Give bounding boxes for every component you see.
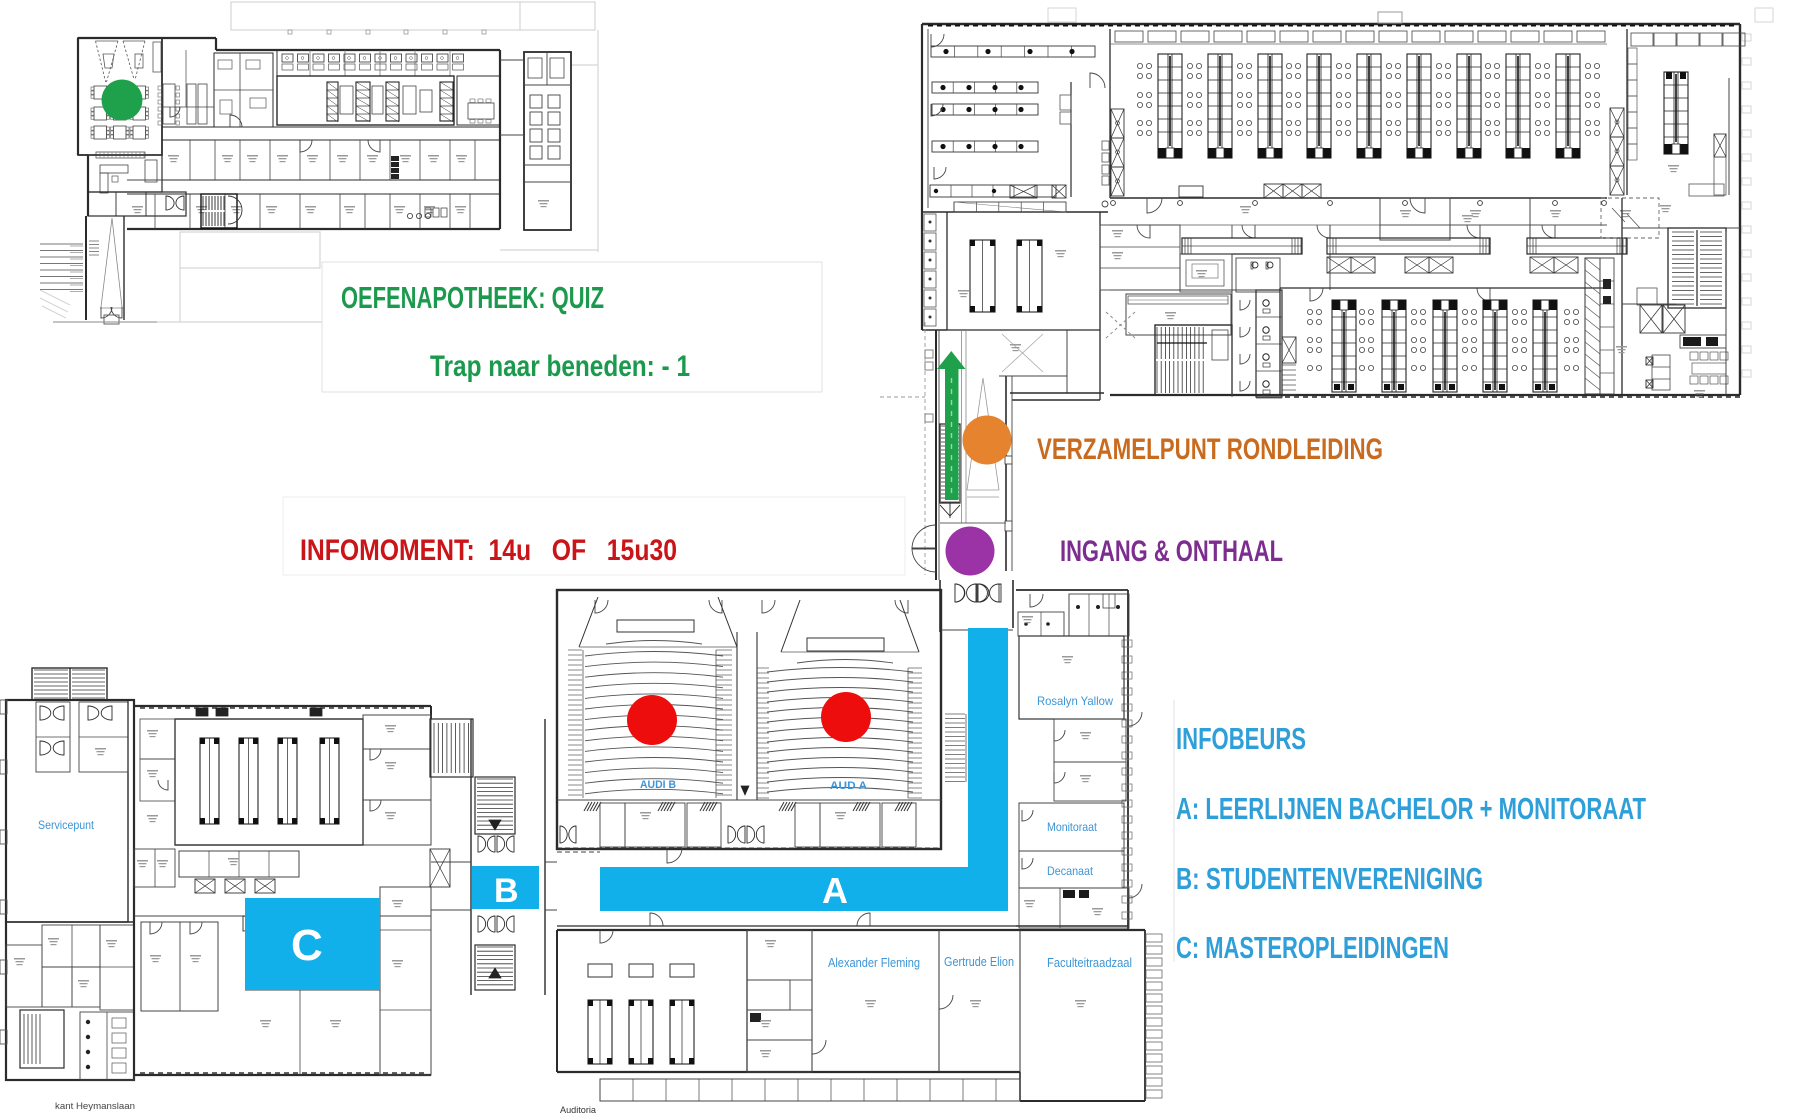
svg-text:Servicepunt: Servicepunt [38, 818, 95, 832]
svg-text:Alexander Fleming: Alexander Fleming [828, 955, 920, 970]
svg-text:AUDI B: AUDI B [640, 779, 676, 791]
svg-text:Faculteitraadzaal: Faculteitraadzaal [1047, 955, 1132, 970]
svg-text:OEFENAPOTHEEK: QUIZ: OEFENAPOTHEEK: QUIZ [341, 280, 604, 315]
svg-text:INGANG & ONTHAAL: INGANG & ONTHAAL [1060, 535, 1283, 568]
svg-text:Rosalyn Yallow: Rosalyn Yallow [1037, 694, 1113, 708]
svg-text:Gertrude Elion: Gertrude Elion [944, 954, 1014, 969]
svg-text:Auditoria: Auditoria [560, 1105, 597, 1116]
svg-text:kant Heymanslaan: kant Heymanslaan [55, 1101, 135, 1112]
svg-text:C: C [291, 921, 323, 970]
svg-text:Monitoraat: Monitoraat [1047, 820, 1098, 834]
svg-text:VERZAMELPUNT RONDLEIDING: VERZAMELPUNT RONDLEIDING [1037, 433, 1383, 466]
svg-text:AUD A: AUD A [830, 780, 867, 792]
svg-text:A: A [822, 870, 848, 911]
svg-text:Decanaat: Decanaat [1047, 864, 1094, 878]
svg-text:INFOBEURS: INFOBEURS [1176, 721, 1306, 756]
svg-text:C: MASTEROPLEIDINGEN: C: MASTEROPLEIDINGEN [1176, 930, 1449, 965]
svg-text:Trap naar beneden: - 1: Trap naar beneden: - 1 [430, 350, 690, 383]
svg-text:INFOMOMENT: 14u OF 15u30: INFOMOMENT: 14u OF 15u30 [300, 534, 677, 567]
svg-text:B: B [494, 872, 519, 910]
svg-text:B: STUDENTENVERENIGING: B: STUDENTENVERENIGING [1176, 861, 1483, 896]
svg-text:A: LEERLIJNEN BACHELOR + MONIT: A: LEERLIJNEN BACHELOR + MONITORAAT [1176, 791, 1646, 826]
